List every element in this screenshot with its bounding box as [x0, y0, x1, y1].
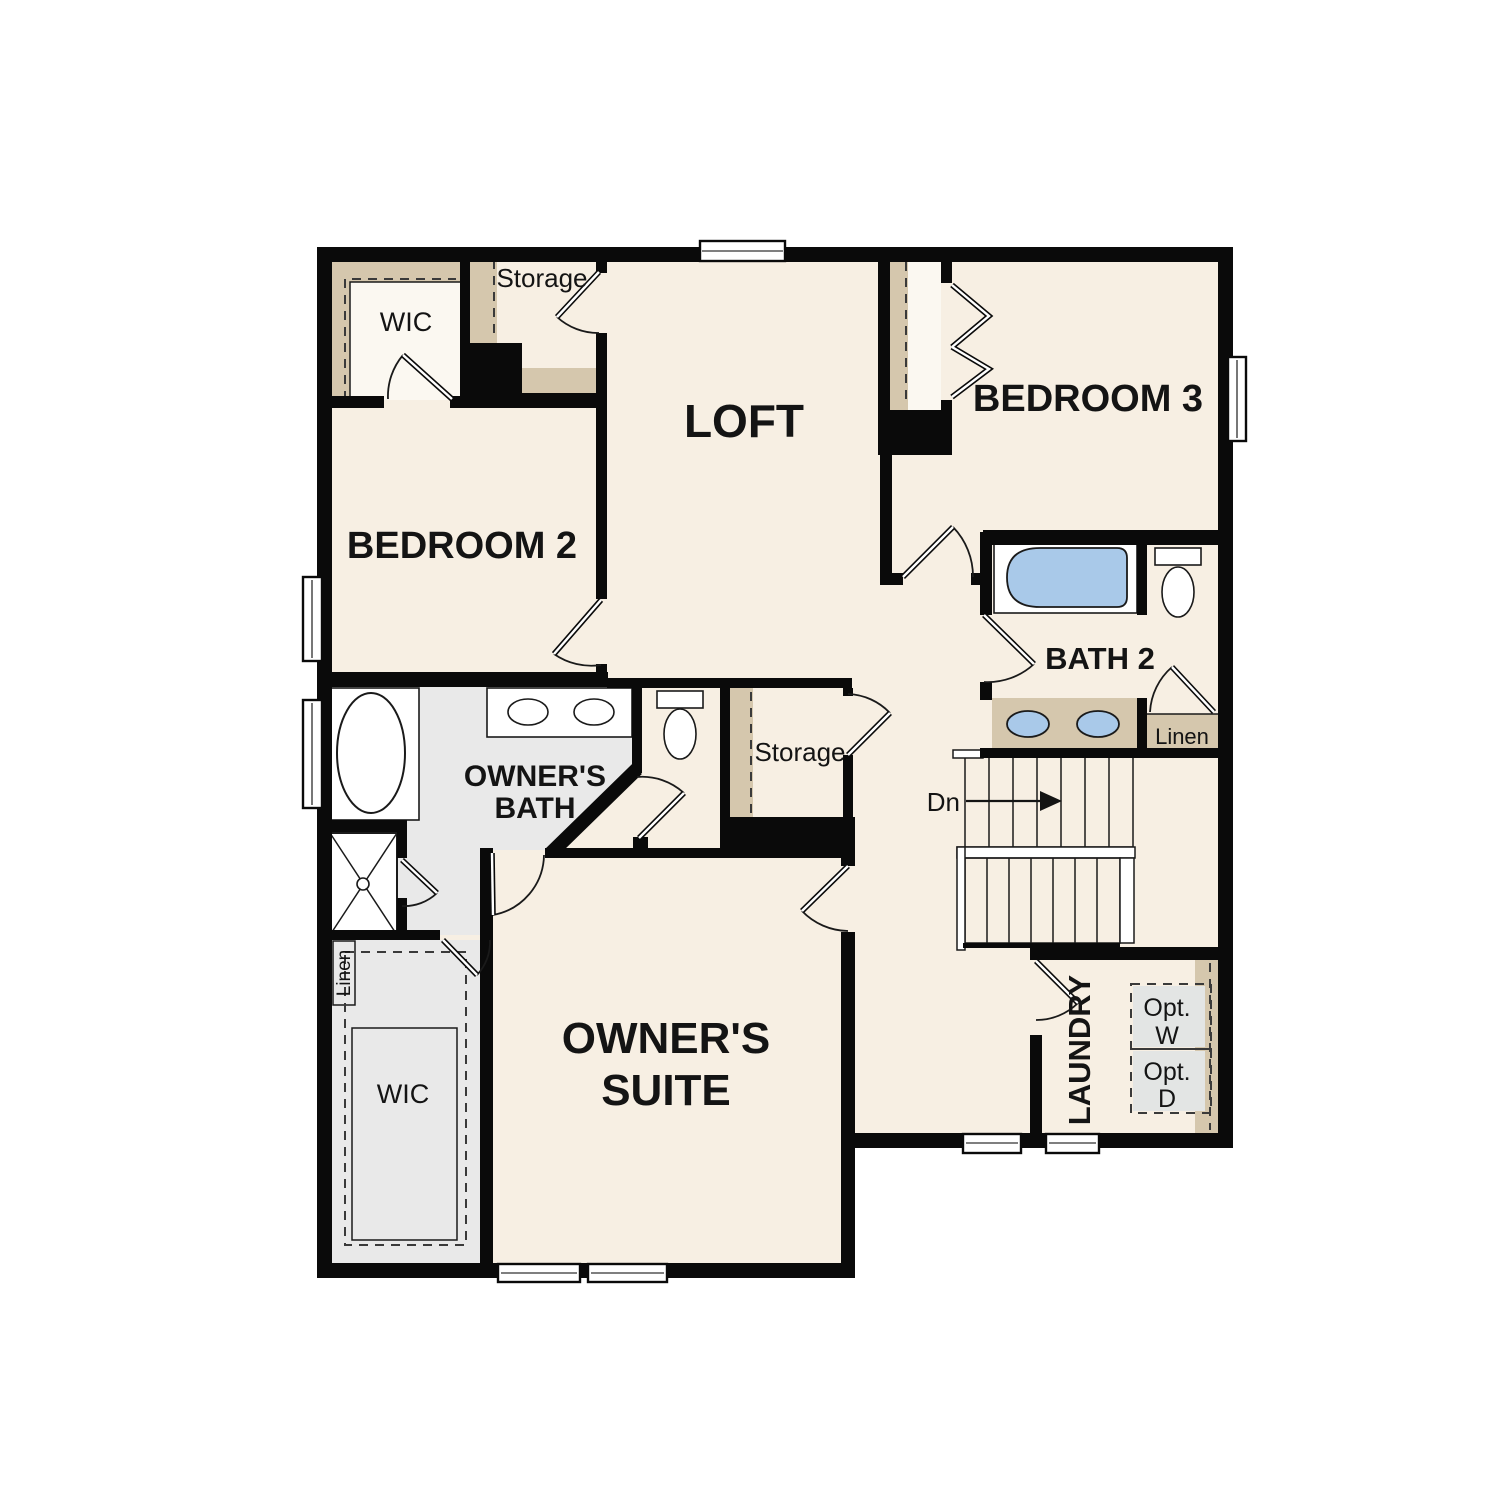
- stair-handrail: [957, 847, 1135, 858]
- wall-segment: [880, 455, 892, 573]
- storage-mid-shelf: [730, 688, 753, 817]
- label-bedroom3: BEDROOM 3: [973, 378, 1203, 420]
- shower-icon: [330, 833, 397, 935]
- window-laundry-bottom: [1046, 1134, 1099, 1153]
- wall-segment: [720, 817, 855, 858]
- window-loft-top: [700, 241, 785, 261]
- wall-segment: [596, 333, 607, 599]
- wall-segment: [980, 532, 992, 615]
- label-bedroom2: BEDROOM 2: [347, 525, 577, 567]
- wall-segment: [841, 858, 855, 866]
- wall-segment: [632, 687, 642, 773]
- wall-segment: [880, 573, 903, 585]
- label-opt-dryer-line1: Opt.: [1143, 1058, 1190, 1086]
- wall-segment: [317, 820, 407, 832]
- wall-segment: [607, 678, 852, 688]
- window-owners-suite-2: [588, 1264, 667, 1282]
- owners-tub-icon: [337, 693, 405, 813]
- wall-segment: [980, 748, 1218, 758]
- stair-rail-right: [1120, 858, 1134, 943]
- owners-sink-left-icon: [508, 699, 548, 725]
- bath2-tub-icon: [1007, 548, 1127, 607]
- wall-segment: [317, 1263, 855, 1278]
- label-wic-bottom: WIC: [377, 1079, 429, 1109]
- label-stairs-dn: Dn: [927, 787, 960, 817]
- wall-segment: [460, 343, 522, 408]
- wall-segment: [720, 688, 730, 817]
- owners-toilet-bowl-icon: [664, 709, 696, 759]
- window-owners-suite-1: [498, 1264, 580, 1282]
- wall-segment: [317, 396, 384, 408]
- window-bedroom2-left: [303, 577, 322, 661]
- wall-segment: [841, 932, 855, 1263]
- label-owners-bath-line2: BATH: [494, 792, 575, 825]
- label-storage-top: Storage: [496, 263, 587, 293]
- label-wic-top: WIC: [380, 307, 432, 337]
- wall-segment: [853, 1133, 1233, 1148]
- wall-segment: [1030, 1035, 1042, 1133]
- floorplan-drawing: WIC Storage LOFT BEDROOM 3 BEDROOM 2 BAT…: [0, 0, 1500, 1500]
- wall-segment: [545, 848, 723, 858]
- bath2-toilet-bowl-icon: [1162, 567, 1194, 617]
- bath2-sink-left-icon: [1007, 711, 1049, 737]
- window-bedroom3-right: [1228, 357, 1246, 441]
- wall-segment: [941, 257, 952, 283]
- label-laundry: LAUNDRY: [1062, 974, 1097, 1125]
- label-owners-suite-line1: OWNER'S: [562, 1014, 770, 1063]
- stair-rail-left: [957, 847, 965, 950]
- wall-segment: [983, 530, 1233, 545]
- wall-segment: [317, 672, 608, 687]
- wall-segment: [1030, 947, 1223, 960]
- label-owners-bath-line1: OWNER'S: [464, 760, 606, 793]
- label-bath2: BATH 2: [1045, 641, 1155, 676]
- wic-top-inner-floor: [350, 282, 460, 400]
- bedroom3-closet-floor: [908, 262, 941, 410]
- label-storage-mid: Storage: [754, 737, 845, 767]
- floorplan-page: WIC Storage LOFT BEDROOM 3 BEDROOM 2 BAT…: [0, 0, 1500, 1500]
- storage-top-shelf: [468, 257, 497, 343]
- storage-top-lower-shelf: [522, 368, 598, 393]
- bath2-toilet-tank-icon: [1155, 548, 1201, 565]
- wall-segment: [980, 682, 992, 700]
- wall-segment: [1137, 538, 1147, 615]
- wall-segment: [878, 410, 952, 455]
- window-owners-bath-left: [303, 700, 322, 808]
- wall-segment: [522, 393, 598, 408]
- label-owners-suite-line2: SUITE: [601, 1066, 731, 1115]
- stair-entry-strip: [953, 750, 983, 758]
- label-opt-dryer-line2: D: [1158, 1085, 1176, 1113]
- label-opt-washer-line1: Opt.: [1143, 994, 1190, 1022]
- wall-segment: [317, 930, 440, 940]
- wall-segment: [941, 400, 952, 410]
- wall-segment: [397, 832, 407, 858]
- label-opt-washer-line2: W: [1155, 1022, 1179, 1050]
- owners-toilet-tank-icon: [657, 691, 703, 708]
- wall-segment: [596, 257, 607, 273]
- label-linen-bath2: Linen: [1155, 724, 1209, 749]
- owners-sink-right-icon: [574, 699, 614, 725]
- window-hall-bottom-1: [963, 1134, 1021, 1153]
- bath2-sink-right-icon: [1077, 711, 1119, 737]
- label-linen-owner: Linen: [334, 950, 355, 997]
- label-loft: LOFT: [684, 395, 804, 447]
